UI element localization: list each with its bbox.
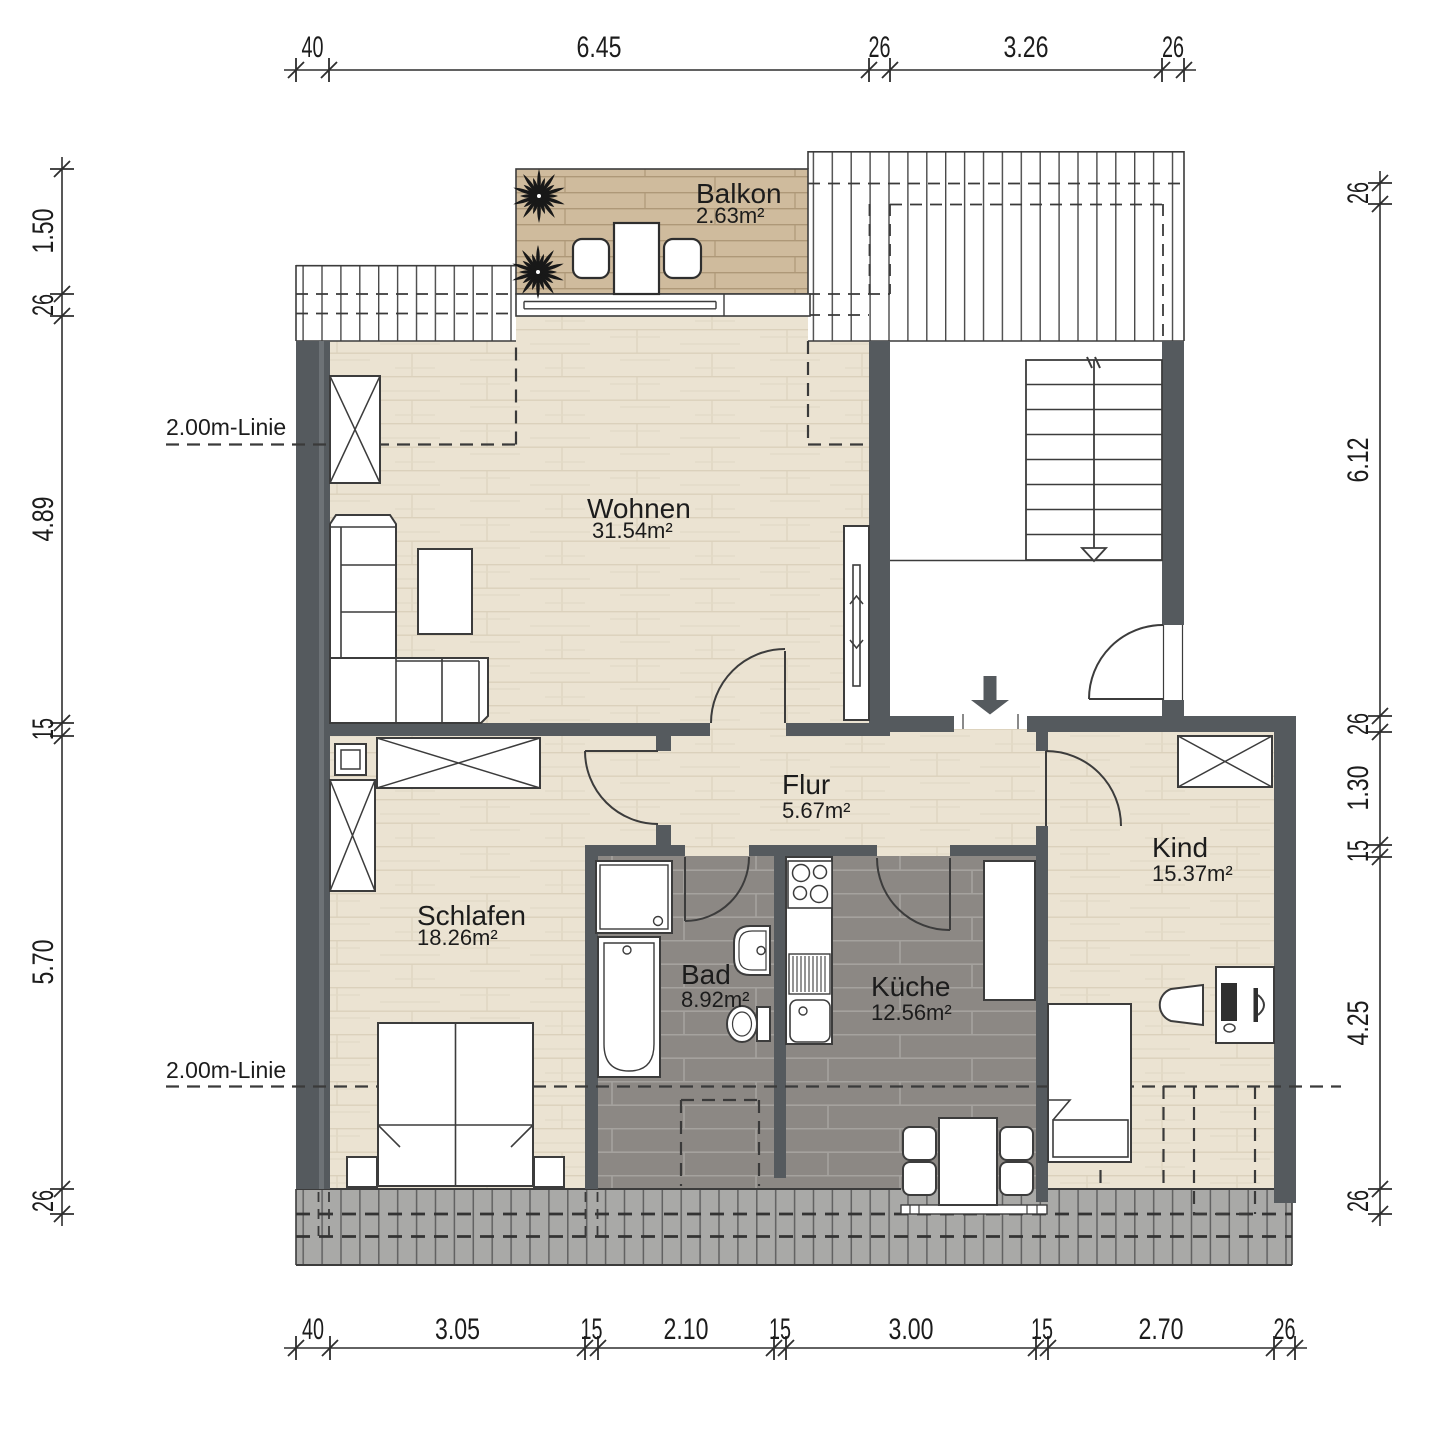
svg-text:5.67m²: 5.67m²	[782, 798, 850, 823]
svg-text:Bad: Bad	[681, 959, 731, 990]
svg-text:2.00m-Linie: 2.00m-Linie	[166, 414, 286, 440]
svg-text:26: 26	[1342, 1190, 1375, 1212]
svg-text:2.10: 2.10	[664, 1313, 709, 1346]
svg-text:15: 15	[1342, 840, 1375, 862]
svg-text:26: 26	[1342, 182, 1375, 204]
svg-text:3.26: 3.26	[1004, 31, 1049, 64]
svg-text:15: 15	[1031, 1313, 1053, 1346]
svg-text:26: 26	[1274, 1313, 1296, 1346]
svg-text:15: 15	[27, 718, 60, 740]
svg-text:Flur: Flur	[782, 769, 830, 800]
svg-text:2.63m²: 2.63m²	[696, 203, 764, 228]
svg-text:31.54m²: 31.54m²	[592, 518, 673, 543]
svg-text:15: 15	[769, 1313, 791, 1346]
svg-text:26: 26	[1162, 31, 1184, 64]
svg-text:26: 26	[27, 1190, 60, 1212]
svg-text:40: 40	[302, 31, 324, 64]
svg-text:6.12: 6.12	[1342, 438, 1375, 483]
svg-text:18.26m²: 18.26m²	[417, 925, 498, 950]
svg-text:26: 26	[27, 294, 60, 316]
svg-text:3.00: 3.00	[889, 1313, 934, 1346]
svg-text:8.92m²: 8.92m²	[681, 987, 749, 1012]
svg-text:40: 40	[302, 1313, 324, 1346]
svg-text:15: 15	[581, 1313, 603, 1346]
svg-text:1.30: 1.30	[1342, 766, 1375, 811]
svg-text:Kind: Kind	[1152, 832, 1208, 863]
svg-text:4.25: 4.25	[1342, 1001, 1375, 1046]
svg-text:26: 26	[869, 31, 891, 64]
svg-text:Küche: Küche	[871, 971, 950, 1002]
svg-text:4.89: 4.89	[27, 497, 60, 542]
svg-text:6.45: 6.45	[577, 31, 622, 64]
svg-text:3.05: 3.05	[435, 1313, 480, 1346]
svg-text:2.70: 2.70	[1139, 1313, 1184, 1346]
svg-text:26: 26	[1342, 713, 1375, 735]
svg-text:12.56m²: 12.56m²	[871, 1000, 952, 1025]
svg-text:15.37m²: 15.37m²	[1152, 861, 1233, 886]
svg-text:5.70: 5.70	[27, 940, 60, 985]
svg-text:2.00m-Linie: 2.00m-Linie	[166, 1057, 286, 1083]
svg-text:1.50: 1.50	[27, 209, 60, 254]
